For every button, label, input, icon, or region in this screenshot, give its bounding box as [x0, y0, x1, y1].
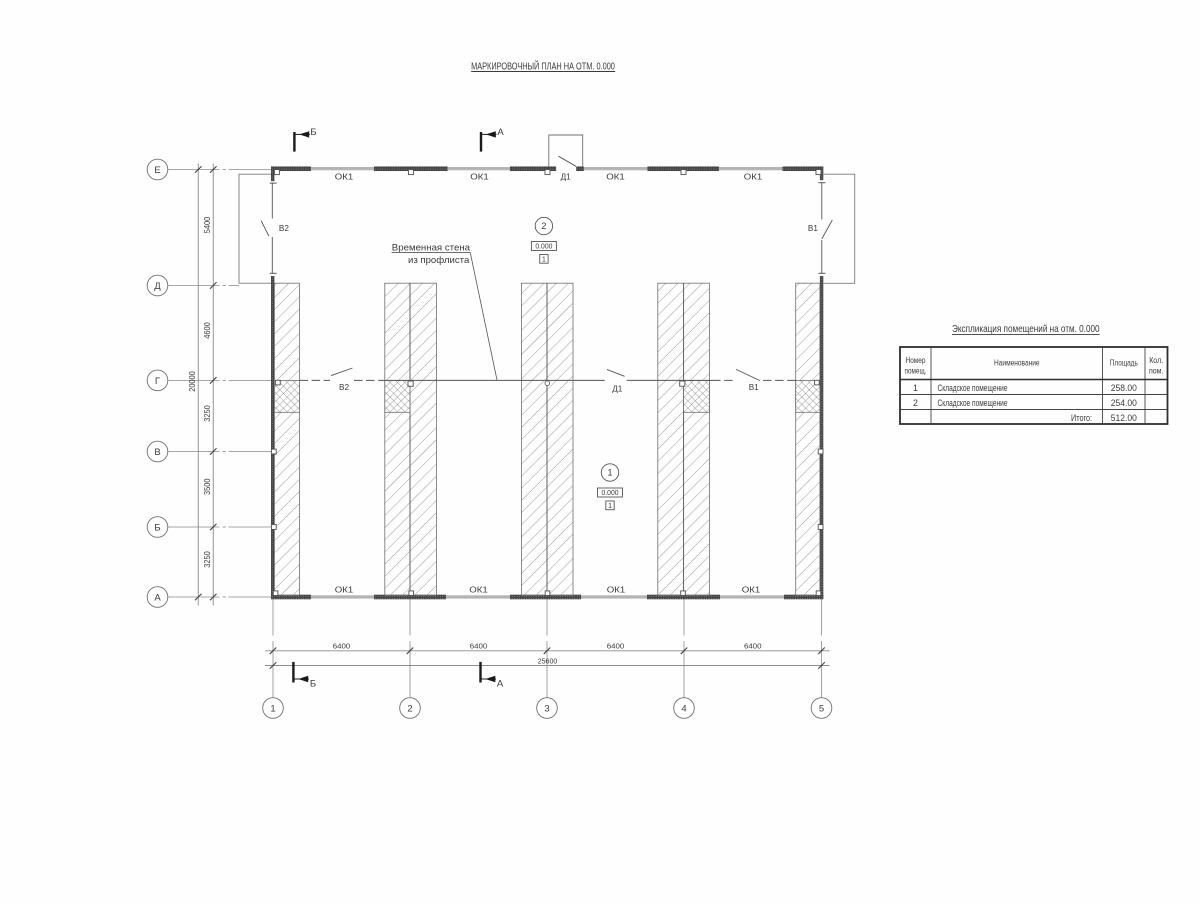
svg-text:А: А: [497, 679, 504, 690]
svg-text:Г: Г: [155, 376, 160, 387]
svg-text:из профлиста: из профлиста: [408, 255, 470, 265]
svg-text:Номер: Номер: [906, 355, 926, 365]
svg-text:В: В: [154, 447, 160, 458]
svg-text:А: А: [497, 127, 504, 138]
svg-text:Б: Б: [154, 522, 160, 533]
svg-text:В2: В2: [279, 224, 289, 233]
svg-text:Д: Д: [154, 281, 161, 292]
svg-text:0.000: 0.000: [535, 242, 552, 251]
svg-text:А: А: [154, 592, 161, 603]
svg-text:Временная стена: Временная стена: [392, 242, 471, 252]
svg-text:4: 4: [681, 703, 686, 714]
svg-text:ОК1: ОК1: [469, 586, 488, 595]
svg-text:Д1: Д1: [561, 172, 572, 181]
svg-text:1: 1: [270, 703, 275, 714]
svg-text:МАРКИРОВОЧНЫЙ ПЛАН НА ОТМ. 0.0: МАРКИРОВОЧНЫЙ ПЛАН НА ОТМ. 0.000: [471, 60, 615, 73]
svg-text:1: 1: [913, 383, 918, 393]
svg-text:512.00: 512.00: [1111, 413, 1137, 423]
svg-text:1: 1: [608, 501, 612, 510]
svg-text:Экспликация помещений на отм.: Экспликация помещений на отм. 0.000: [952, 323, 1100, 335]
svg-text:6400: 6400: [470, 643, 488, 650]
svg-text:Наименование: Наименование: [994, 357, 1040, 367]
svg-text:ОК1: ОК1: [606, 172, 625, 181]
svg-text:ОК1: ОК1: [470, 172, 489, 181]
svg-text:В1: В1: [749, 383, 759, 392]
svg-text:5: 5: [819, 703, 824, 714]
svg-text:258.00: 258.00: [1111, 383, 1137, 393]
svg-text:Б: Б: [310, 127, 316, 138]
svg-text:пом.: пом.: [1149, 366, 1164, 376]
svg-text:6400: 6400: [333, 643, 351, 650]
svg-text:Складское помещение: Складское помещение: [938, 383, 1008, 393]
svg-text:ОК1: ОК1: [742, 586, 761, 595]
svg-text:254.00: 254.00: [1111, 398, 1137, 408]
svg-text:Д1: Д1: [612, 385, 623, 394]
svg-text:ОК1: ОК1: [744, 172, 763, 181]
svg-text:1: 1: [607, 468, 612, 478]
svg-text:Кол.: Кол.: [1149, 355, 1163, 365]
svg-text:В2: В2: [339, 383, 349, 392]
svg-text:ОК1: ОК1: [335, 172, 354, 181]
svg-text:1: 1: [542, 254, 546, 263]
svg-text:ОК1: ОК1: [335, 586, 354, 595]
svg-text:Итого:: Итого:: [1071, 413, 1092, 423]
svg-text:4600: 4600: [203, 322, 212, 339]
svg-text:ОК1: ОК1: [607, 586, 626, 595]
svg-text:2: 2: [541, 221, 546, 231]
svg-text:25600: 25600: [538, 658, 558, 665]
svg-text:6400: 6400: [607, 643, 625, 650]
svg-text:3250: 3250: [203, 405, 212, 422]
svg-text:0.000: 0.000: [602, 488, 619, 497]
svg-text:2: 2: [913, 398, 918, 408]
svg-text:Б: Б: [310, 679, 316, 690]
svg-text:помещ.: помещ.: [905, 366, 927, 376]
svg-text:5400: 5400: [203, 216, 212, 233]
svg-text:Е: Е: [154, 165, 160, 176]
svg-text:3: 3: [544, 703, 549, 714]
svg-text:3250: 3250: [203, 551, 212, 568]
svg-text:3500: 3500: [203, 478, 212, 495]
svg-text:2: 2: [407, 703, 412, 714]
svg-text:Площадь: Площадь: [1110, 357, 1138, 367]
svg-text:Складское помещение: Складское помещение: [938, 398, 1008, 408]
svg-text:6400: 6400: [744, 643, 762, 650]
svg-text:В1: В1: [808, 224, 818, 233]
svg-text:20000: 20000: [188, 371, 197, 392]
